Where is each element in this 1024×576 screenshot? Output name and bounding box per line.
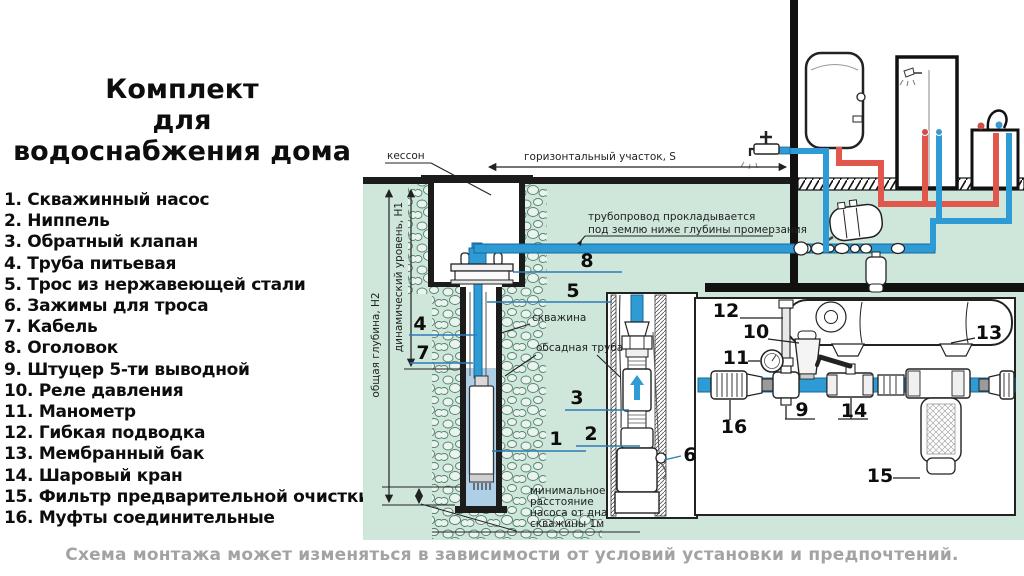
pump-top: [617, 448, 657, 492]
small-filter: [866, 257, 886, 285]
label-kesson: кессон: [387, 150, 425, 162]
heater-knob: [857, 93, 865, 101]
hot-mixer-knob: [922, 129, 929, 136]
caisson-lid: [421, 175, 533, 183]
water-supply-scheme: кессон горизонтальный участок, S трубопр…: [0, 0, 1024, 576]
submersible-pump: [470, 376, 494, 490]
callout-9: 9: [795, 399, 808, 421]
callout-16: 16: [721, 416, 747, 438]
outdoor-tap: [741, 131, 790, 169]
basement-floor: [705, 283, 1024, 292]
manometer: [761, 350, 783, 372]
ground-line: [525, 177, 791, 184]
callout-12: 12: [713, 300, 739, 322]
callout-3: 3: [570, 387, 583, 409]
label-borehole: скважина: [532, 312, 586, 324]
callout-13: 13: [976, 322, 1002, 344]
callout-6: 6: [683, 444, 696, 466]
callout-8: 8: [580, 250, 593, 272]
callout-5: 5: [566, 280, 579, 302]
ground-line: [363, 177, 428, 184]
label-dynamic-level: динамический уровень, Н1: [393, 202, 405, 352]
callout-10: 10: [743, 321, 769, 343]
label-casing: обсадная труба: [536, 342, 623, 354]
label-min-distance: скважины 1м: [530, 518, 604, 530]
gravel: [432, 287, 462, 537]
wall-pass-fitting: [794, 242, 808, 255]
callout-7: 7: [416, 342, 429, 364]
sink-cold-handle: [996, 122, 1003, 129]
sink-hot-handle: [978, 123, 985, 130]
water-heater: [806, 53, 863, 148]
callout-14: 14: [841, 400, 867, 422]
label-total-depth: общая глубина, Н2: [370, 292, 382, 397]
pump-detail-inset: [607, 293, 697, 518]
label-horizontal-section: горизонтальный участок, S: [524, 151, 676, 163]
callout-2: 2: [584, 423, 597, 445]
label-pipeline-note: под землю ниже глубины промерзания: [588, 224, 807, 236]
callout-1: 1: [549, 428, 562, 450]
rope-clamp: [656, 453, 666, 463]
nipple: [628, 411, 646, 428]
tap-drips: [741, 162, 757, 169]
callout-11: 11: [723, 347, 749, 369]
callout-15: 15: [867, 465, 893, 487]
label-pipeline-note: трубопровод прокладывается: [588, 211, 755, 223]
callout-4: 4: [413, 313, 426, 335]
union-connector: [878, 375, 904, 395]
cold-mixer-knob: [936, 129, 943, 136]
